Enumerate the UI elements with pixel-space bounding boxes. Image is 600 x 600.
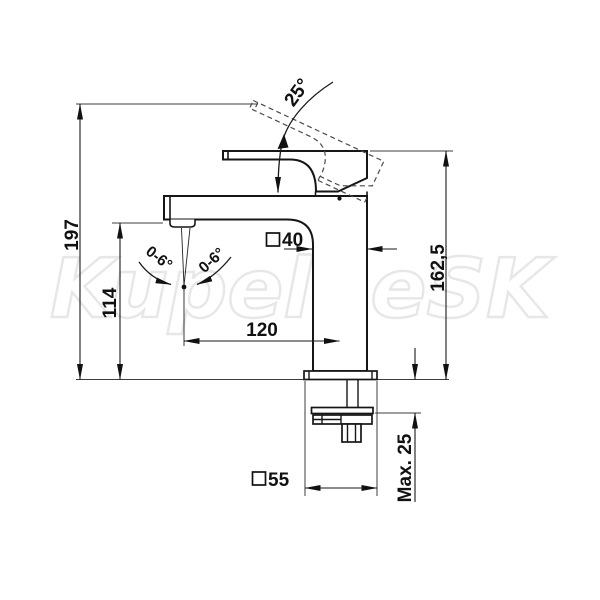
label-fixture-height: 162,5: [428, 244, 449, 292]
label-lever-angle: 25°: [281, 75, 315, 111]
label-max-deck-thickness: Max. 25: [395, 433, 416, 502]
base-plate: [304, 371, 377, 380]
mounting-nut: [342, 424, 361, 442]
label-spout-reach: 120: [246, 320, 278, 341]
technical-drawing-canvas: KupelneSK: [0, 0, 600, 600]
mounting-hardware: [304, 371, 377, 442]
label-base-square-width: 55: [268, 470, 290, 491]
watermark-text: KupelneSK: [50, 242, 555, 337]
spray-apex-dot: [182, 285, 187, 290]
label-outlet-height: 114: [100, 287, 121, 318]
arc-25deg-mid-arrow: [278, 134, 289, 149]
label-total-height: 197: [62, 219, 83, 251]
square-section-icon-55: [253, 472, 266, 485]
label-body-square-width: 40: [282, 230, 303, 251]
handle-open-outline: [236, 101, 384, 199]
clamp-washer-top: [312, 408, 374, 414]
faucet-dimension-drawing: KupelneSK: [0, 0, 600, 600]
handle-pivot-dot: [337, 196, 341, 200]
aerator: [170, 220, 195, 228]
